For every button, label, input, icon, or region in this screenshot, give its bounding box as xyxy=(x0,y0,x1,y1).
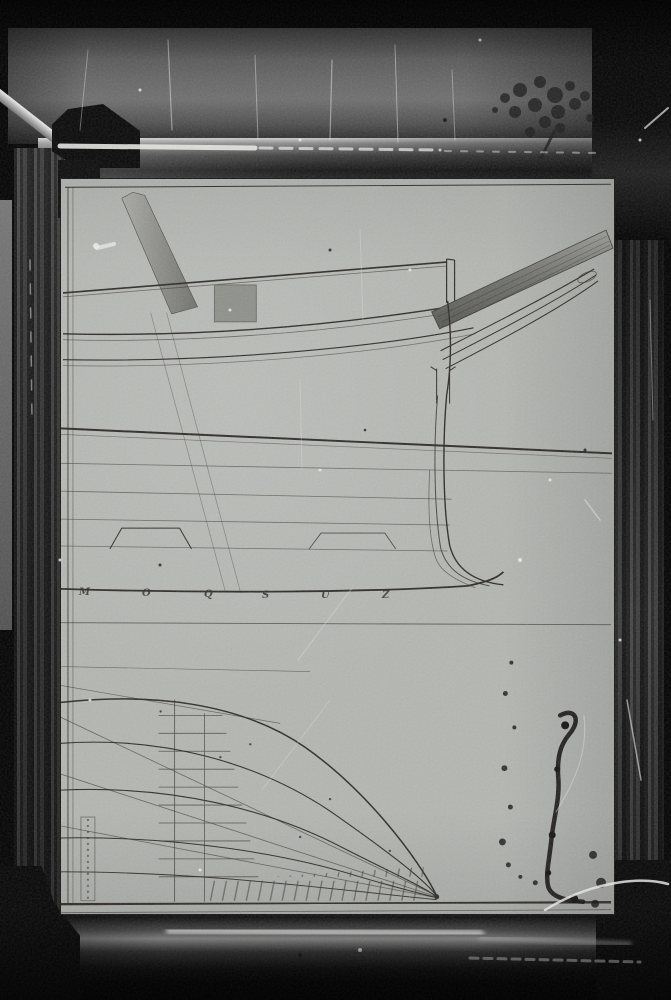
frame-bottom-rail xyxy=(26,910,648,982)
bowsprit xyxy=(432,230,613,329)
drawing-sheet: M O Q S U Z xyxy=(60,178,615,915)
convergence-point xyxy=(434,894,439,899)
bow-post xyxy=(431,367,456,404)
ship-lines-drawing xyxy=(61,179,614,914)
hatch-marks xyxy=(205,867,423,901)
pasted-patch xyxy=(214,285,256,322)
ink-blot xyxy=(499,661,606,908)
station-label-q: Q xyxy=(204,589,213,600)
intersection-dots xyxy=(159,710,391,852)
load-waterline xyxy=(61,428,612,453)
deadwood-trapezoid-2 xyxy=(309,533,396,549)
diagonal-lines xyxy=(61,667,437,898)
station-label-u: U xyxy=(321,590,330,601)
station-label-s: S xyxy=(262,590,269,601)
waterlines xyxy=(61,463,612,551)
keel-line xyxy=(61,572,503,592)
half-breadth-plan xyxy=(61,667,611,904)
station-label-o: O xyxy=(142,588,151,599)
station-label-z: Z xyxy=(382,590,389,601)
wall-left-sliver xyxy=(0,200,12,630)
sheet-border-lines xyxy=(61,184,611,912)
scale-bar xyxy=(81,817,95,901)
frame-left-rail xyxy=(14,148,64,990)
photograph-of-framed-ship-plan: M O Q S U Z xyxy=(0,0,671,1000)
deadwood-trapezoid xyxy=(110,528,192,549)
station-label-m: M xyxy=(79,587,90,598)
sheer-plan xyxy=(61,192,613,624)
mast-stub xyxy=(122,192,198,314)
